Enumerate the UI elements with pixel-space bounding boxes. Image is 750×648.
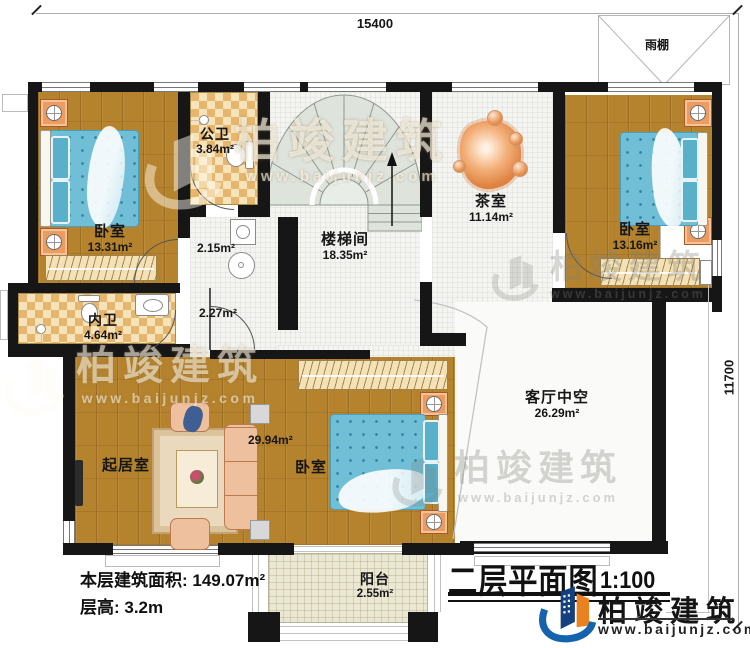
room-label-living-void: 客厅中空 26.29m² xyxy=(512,390,602,420)
lamp-stem xyxy=(41,333,42,343)
wall-tea-west xyxy=(420,92,432,217)
drain xyxy=(238,262,244,268)
nightstand xyxy=(40,99,68,127)
wall-living-bottom xyxy=(63,543,113,555)
room-label-bedroom-left: 卧室 13.31m² xyxy=(70,224,150,254)
wall-void-east xyxy=(652,302,666,554)
wall-pubbath-bottom xyxy=(190,205,206,217)
room-label-living-room: 起居室 xyxy=(90,458,162,475)
outside-window-box xyxy=(2,94,28,112)
balcony-rail xyxy=(280,633,408,634)
balcony-rail xyxy=(440,555,441,612)
room-label-bedroom-right: 卧室 13.16m² xyxy=(595,222,675,252)
balcony-post xyxy=(408,612,438,642)
window xyxy=(474,543,610,552)
washer-drum xyxy=(236,225,250,239)
lamp-icon xyxy=(426,396,442,412)
pillow xyxy=(51,180,70,224)
room-label-bedroom-bottom: 卧室 xyxy=(280,460,342,477)
wall-innerbath-bottom xyxy=(8,344,190,357)
room-area: 13.16m² xyxy=(595,239,675,252)
room-name: 卧室 xyxy=(280,460,342,477)
balcony-rail xyxy=(280,626,408,627)
toilet-tank xyxy=(78,295,100,302)
window xyxy=(452,82,538,92)
wall-bedroomR-bottom xyxy=(552,288,722,302)
wall-bedroom-bath-divider xyxy=(18,283,180,293)
floor-height-note: 层高: 3.2m xyxy=(80,593,163,618)
room-area: 3.84m² xyxy=(185,143,245,156)
room-label-tea-room: 茶室 11.14m² xyxy=(455,194,527,224)
ceiling-lamp xyxy=(199,115,209,125)
brand-logo-icon xyxy=(534,582,598,644)
wardrobe xyxy=(298,360,448,390)
wall-tea-bottom xyxy=(420,333,466,346)
lamp-icon xyxy=(690,105,706,121)
tea-stool xyxy=(487,110,503,126)
window xyxy=(42,82,90,92)
nightstand xyxy=(420,392,448,416)
room-area: 18.35m² xyxy=(303,249,387,262)
wall-stair-west-lower xyxy=(278,217,298,330)
balcony-door-line xyxy=(294,551,402,552)
tea-stool xyxy=(509,132,523,146)
balcony-door-line xyxy=(294,546,402,547)
wall-left-upper xyxy=(28,92,38,283)
area-label-corridor-lower: 2.27m² xyxy=(199,306,237,320)
window xyxy=(244,82,300,92)
headboard xyxy=(40,130,51,227)
wardrobe xyxy=(600,258,700,286)
window xyxy=(308,82,386,92)
room-label-balcony: 阳台 2.55m² xyxy=(338,572,412,601)
toilet-tank xyxy=(245,141,254,169)
brand-underline xyxy=(598,618,734,620)
room-area: 2.55m² xyxy=(338,588,412,601)
room-label-inner-bath: 内卫 4.64m² xyxy=(70,313,136,342)
area-label-bedroom-bottom: 29.94m² xyxy=(248,433,293,447)
lamp-stem xyxy=(191,120,200,121)
round-sink xyxy=(228,252,255,279)
room-area: 13.31m² xyxy=(70,241,150,254)
room-name: 起居室 xyxy=(90,458,162,475)
wardrobe-rail xyxy=(302,375,444,377)
armchair xyxy=(170,518,210,550)
wall-bedroomR-west xyxy=(553,92,565,233)
room-name: 卧室 xyxy=(70,224,150,241)
tea-stool xyxy=(453,160,466,173)
tea-stool xyxy=(512,161,528,177)
pillow xyxy=(51,136,70,180)
wardrobe-rail xyxy=(603,272,697,274)
floor-plan-canvas: 15400 11700 雨棚 xyxy=(0,0,750,648)
area-label-corridor-upper: 2.15m² xyxy=(197,241,235,255)
room-area: 11.14m² xyxy=(455,211,527,224)
window xyxy=(154,82,198,92)
window xyxy=(712,240,722,276)
wall-stair-west-upper xyxy=(258,92,270,217)
brand-url: www.baijunjz.com xyxy=(598,621,750,637)
balcony-rail xyxy=(434,555,435,612)
room-area: 26.29m² xyxy=(512,407,602,420)
cabinet xyxy=(700,260,712,285)
nightstand xyxy=(420,510,448,534)
nightstand xyxy=(684,99,712,127)
floor-area-note: 本层建筑面积: 149.07m² xyxy=(80,566,265,591)
pillow xyxy=(681,180,699,222)
table-flowers xyxy=(190,470,204,484)
room-label-public-bath: 公卫 3.84m² xyxy=(185,127,245,156)
wall-bedroomB-top xyxy=(210,350,370,359)
lamp-icon xyxy=(426,514,442,530)
room-name: 公卫 xyxy=(185,127,245,143)
room-name: 楼梯间 xyxy=(303,232,387,249)
wall-living-bottom xyxy=(218,543,294,555)
wall-right-upper xyxy=(712,92,722,312)
balcony-rail xyxy=(280,640,408,641)
pillow xyxy=(423,462,440,504)
wall-tea-west-stub xyxy=(420,282,432,333)
room-name: 客厅中空 xyxy=(512,390,602,407)
room-name: 阳台 xyxy=(338,572,412,588)
side-table xyxy=(250,404,270,424)
side-table xyxy=(250,520,270,540)
pillow xyxy=(681,138,699,180)
lamp-icon xyxy=(46,105,62,121)
lamp-icon xyxy=(46,234,62,250)
room-name: 内卫 xyxy=(70,313,136,329)
wall-bedroomL-east xyxy=(178,92,190,238)
nightstand xyxy=(40,228,68,256)
room-name: 卧室 xyxy=(595,222,675,239)
balcony-post xyxy=(248,612,280,642)
tv xyxy=(75,460,83,506)
outside-edge-line xyxy=(708,272,709,613)
outside-window-box xyxy=(0,290,8,340)
wall-pubbath-bottom xyxy=(238,205,258,217)
room-name: 茶室 xyxy=(455,194,527,211)
window xyxy=(608,82,694,92)
room-area: 4.64m² xyxy=(70,329,136,342)
room-label-stairwell: 楼梯间 18.35m² xyxy=(303,232,387,262)
pillow xyxy=(423,420,440,462)
